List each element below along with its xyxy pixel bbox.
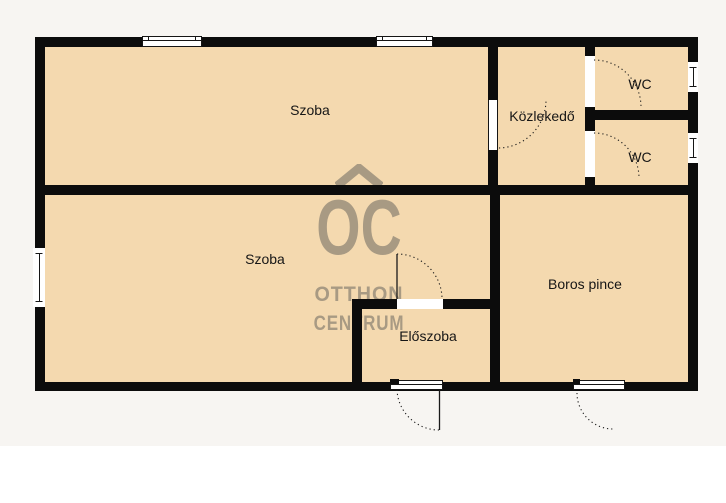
room-label-szoba-bottom: Szoba bbox=[245, 251, 285, 267]
door-swing-arc-eloszoba bbox=[397, 254, 442, 299]
room-label-wc-upper: WC bbox=[628, 76, 651, 92]
room-label-boros-pince: Boros pince bbox=[548, 276, 622, 292]
room-label-wc-lower: WC bbox=[628, 149, 651, 165]
door-swing-arc-borospince-entry bbox=[577, 393, 613, 429]
room-label-kozlekedo: Közlekedő bbox=[509, 108, 574, 124]
room-label-szoba-top: Szoba bbox=[290, 102, 330, 118]
room-label-eloszoba: Előszoba bbox=[399, 328, 457, 344]
floor-plan: OC OTTHON CENTRUM bbox=[0, 0, 726, 503]
door-swing-arc-entry bbox=[397, 390, 439, 430]
door-swing-overlay bbox=[0, 0, 726, 503]
